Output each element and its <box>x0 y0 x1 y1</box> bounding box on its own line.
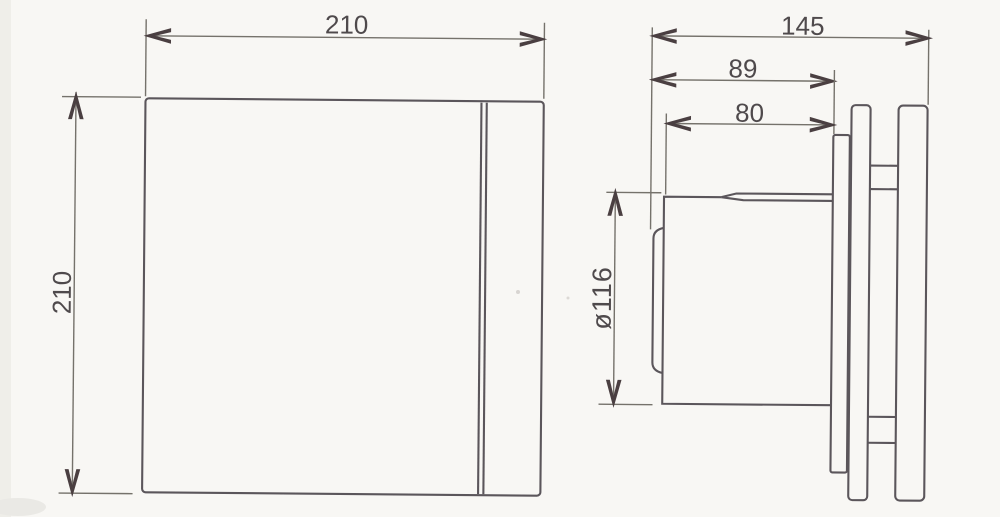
svg-text:80: 80 <box>735 98 764 128</box>
svg-text:ø116: ø116 <box>587 266 618 330</box>
svg-text:210: 210 <box>325 9 369 39</box>
svg-text:210: 210 <box>47 271 77 315</box>
svg-text:145: 145 <box>781 10 825 40</box>
svg-text:89: 89 <box>728 53 757 83</box>
